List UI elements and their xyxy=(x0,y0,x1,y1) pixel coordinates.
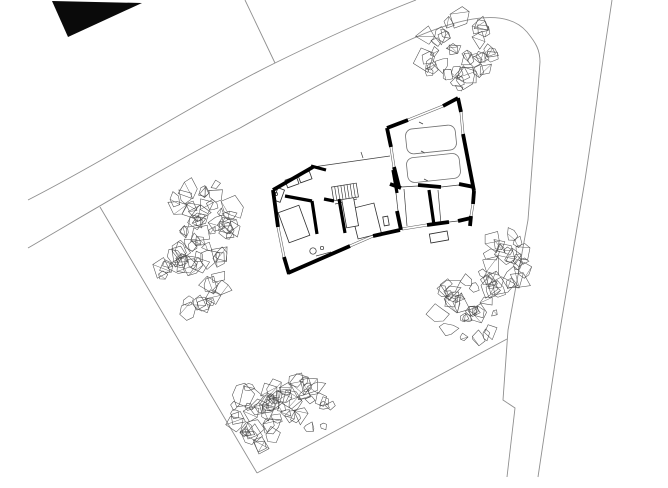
car-outline xyxy=(406,153,461,183)
tree-canopy xyxy=(226,383,291,454)
tree-scribble-polygon xyxy=(168,202,187,215)
tree-scribble-polygon xyxy=(468,54,483,68)
tree-scribble-polygon xyxy=(170,192,180,207)
tree-scribble-chord xyxy=(268,382,281,397)
tree-scribble-polygon xyxy=(308,382,326,395)
wall-segment xyxy=(458,98,461,112)
wall-segment xyxy=(285,196,312,201)
interior-thin-line xyxy=(313,156,390,167)
tree-scribble-chord xyxy=(431,40,438,46)
tree-scribble-chord xyxy=(210,226,215,234)
tree-scribble-chord xyxy=(450,12,469,15)
east-road-left-edge xyxy=(503,62,540,477)
tree-scribble-polygon xyxy=(450,7,469,29)
interior-thin-line xyxy=(401,186,418,187)
tree-scribble-polygon xyxy=(240,431,258,445)
tree-scribble-polygon xyxy=(460,333,468,341)
tree-scribble-polygon xyxy=(263,419,281,434)
tree-canopy xyxy=(168,178,244,252)
wall-segment xyxy=(418,185,441,187)
tree-scribble-polygon xyxy=(480,275,492,285)
window-glazing-line xyxy=(472,204,474,216)
tree-scribble-polygon xyxy=(315,392,326,406)
interior-thin-line xyxy=(396,193,398,211)
tree-scribble-polygon xyxy=(178,178,197,199)
tree-scribble-polygon xyxy=(441,29,451,38)
tree-scribble-polygon xyxy=(266,426,281,442)
window-glazing-line xyxy=(462,112,464,134)
wall-segment xyxy=(443,98,458,106)
tree-scribble-polygon xyxy=(503,266,524,288)
tree-canopy xyxy=(153,240,232,320)
tree-scribble-polygon xyxy=(191,225,210,241)
wall-segment xyxy=(387,120,408,128)
furniture-rect xyxy=(429,231,448,243)
fixture-circle xyxy=(310,248,316,254)
wall-segment xyxy=(463,134,474,191)
tree-scribble-polygon xyxy=(305,396,315,404)
window-glazing-line xyxy=(408,105,443,119)
tree-scribble-polygon xyxy=(199,186,209,197)
tree-scribble-polygon xyxy=(492,310,498,316)
tree-scribble-polygon xyxy=(493,277,516,295)
site-plan-drawing xyxy=(0,0,668,488)
window-glazing-line xyxy=(350,237,373,247)
wall-segment xyxy=(311,166,326,170)
house-floor-plan-layer xyxy=(273,98,474,274)
window-glazing-line xyxy=(460,112,462,134)
tree-scribble-chord xyxy=(208,223,225,228)
tree-scribble-polygon xyxy=(183,296,193,306)
interior-thin-line xyxy=(361,152,363,158)
wall-segment xyxy=(312,201,317,234)
tree-scribble-polygon xyxy=(469,283,479,293)
plot-divider-north xyxy=(245,0,275,63)
tree-scribble-chord xyxy=(508,234,516,241)
neighbor-building-layer xyxy=(52,1,142,37)
site-plan-page xyxy=(0,0,668,488)
tree-scribble-chord xyxy=(472,37,485,42)
furniture-rect xyxy=(383,216,389,226)
tree-scribble-polygon xyxy=(495,244,516,265)
window-glazing-line xyxy=(408,107,443,121)
tree-scribble-chord xyxy=(240,432,250,433)
interior-thin-line xyxy=(438,190,441,224)
interior-thin-line xyxy=(419,122,423,124)
interior-thin-line xyxy=(424,179,428,181)
wall-segment xyxy=(427,222,449,225)
wall-segment xyxy=(429,190,434,225)
tree-scribble-chord xyxy=(474,68,479,78)
interior-thin-line xyxy=(441,185,459,187)
tree-canopy xyxy=(413,7,498,91)
wall-segment xyxy=(473,191,474,204)
tree-scribble-polygon xyxy=(460,274,472,286)
tree-scribble-chord xyxy=(180,302,191,315)
east-road-right-edge xyxy=(538,0,612,477)
window-glazing-line xyxy=(402,224,427,228)
staircase xyxy=(332,183,359,201)
tree-scribble-chord xyxy=(524,267,531,279)
wall-segment xyxy=(387,128,391,147)
tree-scribble-polygon xyxy=(320,423,326,430)
car-outline xyxy=(405,124,457,154)
tree-scribble-chord xyxy=(457,71,477,78)
tree-scribble-polygon xyxy=(455,86,463,91)
furniture-rect xyxy=(278,205,310,243)
tree-canopy xyxy=(262,373,336,434)
road-upper-edge xyxy=(28,0,416,200)
trees-layer xyxy=(153,7,532,454)
tree-scribble-chord xyxy=(444,33,449,38)
window-glazing-line xyxy=(470,204,472,216)
wall-segment xyxy=(470,216,471,226)
tree-scribble-chord xyxy=(207,276,214,294)
wall-segment xyxy=(397,211,401,230)
tree-scribble-polygon xyxy=(254,441,267,452)
tree-scribble-polygon xyxy=(478,25,490,37)
interior-thin-line xyxy=(449,221,458,222)
fixture-circle xyxy=(320,246,323,249)
wall-segment xyxy=(288,246,350,273)
tree-scribble-chord xyxy=(194,305,206,306)
tree-scribble-polygon xyxy=(439,323,459,335)
tree-scribble-chord xyxy=(308,386,319,393)
tree-scribble-chord xyxy=(416,36,435,37)
south-boundary xyxy=(257,339,507,473)
interior-thin-line xyxy=(404,189,407,226)
wall-segment xyxy=(324,199,334,201)
neighbor-building-silhouette xyxy=(52,1,142,37)
tree-scribble-polygon xyxy=(211,180,220,188)
tree-scribble-polygon xyxy=(430,47,439,57)
tree-scribble-polygon xyxy=(483,249,499,260)
tree-scribble-polygon xyxy=(487,48,499,57)
window-glazing-line xyxy=(402,226,427,230)
tree-scribble-polygon xyxy=(179,190,192,204)
tree-scribble-polygon xyxy=(485,325,498,340)
tree-scribble-chord xyxy=(472,336,479,345)
